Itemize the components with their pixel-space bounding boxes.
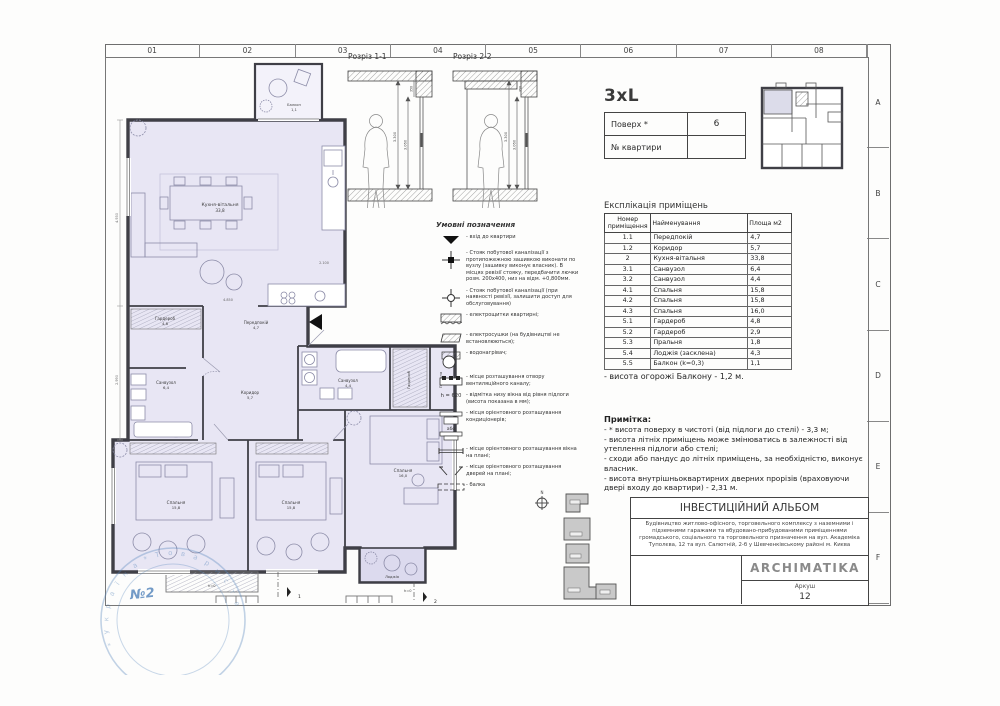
room-area-cell: 4,8 — [748, 317, 792, 328]
room-number-cell: 5.2 — [605, 327, 651, 338]
window-on-plan-icon — [436, 446, 466, 459]
floor-info-table: Поверх * 6 № квартири — [604, 112, 746, 159]
room-name-cell: Гардероб — [651, 327, 748, 338]
explication-row: 1.2 Коридор 5,7 — [605, 243, 792, 254]
title-block-empty-cell — [631, 556, 742, 604]
room-name-cell: Лоджія (засклена) — [651, 348, 748, 359]
grid-column-label: 01 — [105, 44, 200, 57]
legend-text: - Стояк побутової каналізації з протипож… — [466, 250, 582, 283]
room-number-cell: 1.1 — [605, 233, 651, 244]
grid-row-label: A — [867, 57, 889, 148]
room-number-cell: 4.3 — [605, 306, 651, 317]
grid-column-label: 08 — [772, 44, 867, 57]
explication-row: 3.1 Санвузол 6,4 — [605, 264, 792, 275]
north-icon: N — [535, 490, 549, 510]
svg-text:1: 1 — [298, 594, 301, 600]
explication-table: Номер приміщення Найменування Площа м2 1… — [604, 213, 792, 370]
dim-window-height: 3.060 — [404, 139, 408, 150]
grid-column-label: 06 — [581, 44, 676, 57]
legend-text: - відмітка низу вікна від рівня підлоги … — [466, 392, 582, 405]
explication-row: 5.2 Гардероб 2,9 — [605, 327, 792, 338]
apartment-type: 3xL — [604, 86, 639, 106]
room-number-cell: 1.2 — [605, 243, 651, 254]
note-line: - висота внутрішньоквартирних дверних пр… — [604, 474, 872, 494]
svg-text:6,4: 6,4 — [163, 385, 170, 390]
svg-text:або: або — [447, 426, 456, 432]
grid-column-label: 02 — [200, 44, 295, 57]
svg-text:h=0: h=0 — [208, 584, 216, 588]
dim-clear-height: 3.300 — [504, 131, 508, 142]
svg-text:4.930: 4.930 — [115, 213, 119, 223]
svg-text:5,7: 5,7 — [247, 395, 254, 400]
room-number-cell: 3.1 — [605, 264, 651, 275]
electric-panel-icon — [436, 312, 466, 327]
svg-text:16,0: 16,0 — [399, 473, 408, 478]
section-dims — [507, 81, 519, 189]
legend-text: - вхід до квартири — [466, 234, 516, 245]
bathtub-icon — [134, 422, 192, 437]
grid-corner-cell — [867, 44, 890, 57]
room-number-cell: 5.3 — [605, 338, 651, 349]
legend-text: - місце орієнтовного розташування дверей… — [466, 464, 582, 477]
explication-row: 4.1 Спальня 15,8 — [605, 285, 792, 296]
explication-row: 4.3 Спальня 16,0 — [605, 306, 792, 317]
highlighted-unit — [764, 90, 792, 114]
room-name-cell: Санвузол — [651, 264, 748, 275]
explication-row: 1.1 Передпокій 4,7 — [605, 233, 792, 244]
room-area-cell: 6,4 — [748, 264, 792, 275]
grid-column-label: 07 — [677, 44, 772, 57]
room-name-cell: Балкон (k=0,3) — [651, 359, 748, 370]
svg-text:N: N — [541, 490, 544, 495]
room-number-cell: 2 — [605, 254, 651, 265]
svg-text:2: 2 — [434, 599, 437, 603]
room-name-cell: Спальня — [651, 296, 748, 307]
section-dims — [396, 81, 414, 189]
room-name-cell: Пральня — [651, 338, 748, 349]
col-header-area: Площа м2 — [748, 214, 792, 233]
explication-title: Експлікація приміщень — [604, 201, 708, 211]
dim-lintel: 350 — [519, 86, 523, 92]
svg-text:2.100: 2.100 — [319, 261, 329, 265]
room-label-balcony: Балкон — [287, 103, 301, 107]
room-area-cell: 33,8 — [748, 254, 792, 265]
air-conditioner-icon: або — [436, 410, 466, 441]
note-line: - * висота поверху в чистоті (від підлог… — [604, 425, 872, 435]
room-number-cell: 5.5 — [605, 359, 651, 370]
room-area-cell: 15,8 — [748, 296, 792, 307]
grid-row-label: D — [867, 331, 889, 422]
grid-row-label: C — [867, 239, 889, 330]
legend-text: - водонагрівач; — [466, 350, 507, 369]
room-area-balcony: 1,1 — [291, 108, 297, 112]
apartment-number-value — [688, 136, 745, 158]
explication-row: 4.2 Спальня 15,8 — [605, 296, 792, 307]
legend-text: - електрощитки квартирні; — [466, 312, 539, 327]
brand-logo: ARCHIMATIKA — [742, 556, 868, 581]
section-1-drawing: 3.300 3.060 350 — [346, 63, 434, 208]
room-name-cell: Коридор — [651, 243, 748, 254]
sheet-label: Аркуш — [795, 583, 816, 590]
svg-text:2.990: 2.990 — [115, 375, 119, 385]
room-name-cell: Спальня — [651, 306, 748, 317]
grid-row-label: F — [867, 513, 889, 604]
svg-text:4,7: 4,7 — [253, 325, 260, 330]
room-name-cell: Спальня — [651, 285, 748, 296]
room-area-cell: 16,0 — [748, 306, 792, 317]
room-name-cell: Передпокій — [651, 233, 748, 244]
room-number-cell: 3.2 — [605, 275, 651, 286]
explication-row: 3.2 Санвузол 4,4 — [605, 275, 792, 286]
notes-title: Примітка: — [604, 414, 872, 425]
grid-row-label: B — [867, 148, 889, 239]
section-1-title: Розріз 1-1 — [348, 52, 387, 61]
floor-label: Поверх * — [605, 113, 688, 135]
svg-text:15,8: 15,8 — [287, 505, 296, 510]
room-area-cell: 4,7 — [748, 233, 792, 244]
door-on-plan-icon — [436, 464, 466, 477]
legend-title: Умовні позначення — [436, 220, 582, 229]
section-2-title: Розріз 2-2 — [453, 52, 492, 61]
beam-icon — [436, 482, 466, 491]
room-area-cell: 1,1 — [748, 359, 792, 370]
room-area-cell: 1,8 — [748, 338, 792, 349]
explication-row: 5.1 Гардероб 4,8 — [605, 317, 792, 328]
svg-text:4.850: 4.850 — [223, 298, 233, 302]
room-area-cell: 4,4 — [748, 275, 792, 286]
legend-text: - місце орієнтовного розташування вікна … — [466, 446, 582, 459]
balcony-top: Балкон 1,1 — [255, 64, 322, 120]
explication-row: 5.3 Пральня 1,8 — [605, 338, 792, 349]
legend-text: - місця орієнтовного розташування кондиц… — [466, 410, 582, 441]
notes-block: Примітка: - * висота поверху в чистоті (… — [604, 414, 872, 493]
svg-text:Гардероб: Гардероб — [407, 370, 411, 389]
sewer-riser-filled-icon — [436, 250, 466, 283]
svg-text:4,4: 4,4 — [345, 383, 352, 388]
svg-text:Лоджія: Лоджія — [385, 575, 399, 579]
window-sill-mark: h = 620 — [436, 392, 466, 405]
room-name-cell: Санвузол — [651, 275, 748, 286]
floor-value: 6 — [688, 113, 745, 135]
terrace-and-stairs — [166, 572, 392, 603]
room-number-cell: 4.2 — [605, 296, 651, 307]
water-heater-icon — [436, 350, 466, 369]
site-buildings — [564, 494, 616, 599]
svg-text:15,8: 15,8 — [172, 505, 181, 510]
note-line: - сходи або пандус до літніх приміщень, … — [604, 454, 872, 474]
room-number-cell: 4.1 — [605, 285, 651, 296]
legend-text: - місце розташування отвору вентиляційно… — [466, 374, 582, 387]
room-area-cell: 2,9 — [748, 327, 792, 338]
svg-text:33,8: 33,8 — [215, 208, 225, 213]
explication-row: 5.5 Балкон (k=0,3) 1,1 — [605, 359, 792, 370]
grid-column-label: 05 — [486, 44, 581, 57]
album-title: ІНВЕСТИЦІЙНИЙ АЛЬБОМ — [631, 498, 868, 519]
legend-text: - електросушки (на будівництві не встано… — [466, 332, 582, 345]
svg-text:4,8: 4,8 — [162, 321, 169, 326]
legend: Умовні позначення - вхід до квартири - С… — [436, 220, 582, 496]
legend-text: - Стояк побутової каналізації (при наявн… — [466, 288, 582, 308]
room-number-cell: 5.1 — [605, 317, 651, 328]
kitchen-counter — [322, 146, 345, 230]
entrance-arrow-icon — [309, 314, 322, 330]
title-block: ІНВЕСТИЦІЙНИЙ АЛЬБОМ Будівництво житлово… — [630, 497, 869, 606]
room-name-cell: Кухня-вітальня — [651, 254, 748, 265]
balcony-height-note: - висота огорожі Балкону - 1,2 м. — [604, 372, 744, 381]
room-number-cell: 5.4 — [605, 348, 651, 359]
apartment-number-label: № квартири — [605, 136, 688, 158]
sheet-number: 12 — [799, 592, 810, 602]
legend-text: - балка — [466, 482, 485, 491]
section-2-drawing: 3.300 3.060 350 — [451, 63, 539, 208]
dim-window-height: 3.060 — [513, 139, 517, 150]
col-header-name: Найменування — [651, 214, 748, 233]
entrance-triangle-icon — [436, 234, 466, 245]
key-plan-building — [750, 82, 855, 177]
room-name-cell: Гардероб — [651, 317, 748, 328]
dim-lintel: 350 — [410, 86, 414, 92]
vent-opening-icon — [436, 374, 466, 387]
electric-dryer-icon — [436, 332, 466, 345]
bathtub2-icon — [336, 350, 386, 372]
svg-text:h=0: h=0 — [404, 589, 412, 593]
note-line: - висота літніх приміщень може змінювати… — [604, 435, 872, 455]
sewer-riser-open-icon — [436, 288, 466, 308]
site-key-plan: N — [528, 488, 623, 603]
room-area-cell: 5,7 — [748, 243, 792, 254]
project-description: Будівництво житлово-офісного, торговельн… — [631, 519, 868, 556]
col-header-number: Номер приміщення — [605, 214, 651, 233]
explication-row: 2 Кухня-вітальня 33,8 — [605, 254, 792, 265]
room-area-cell: 4,3 — [748, 348, 792, 359]
room-area-cell: 15,8 — [748, 285, 792, 296]
grid-right-ruler: ABCDEF — [867, 57, 889, 604]
dim-clear-height: 3.300 — [393, 131, 397, 142]
explication-row: 5.4 Лоджія (засклена) 4,3 — [605, 348, 792, 359]
